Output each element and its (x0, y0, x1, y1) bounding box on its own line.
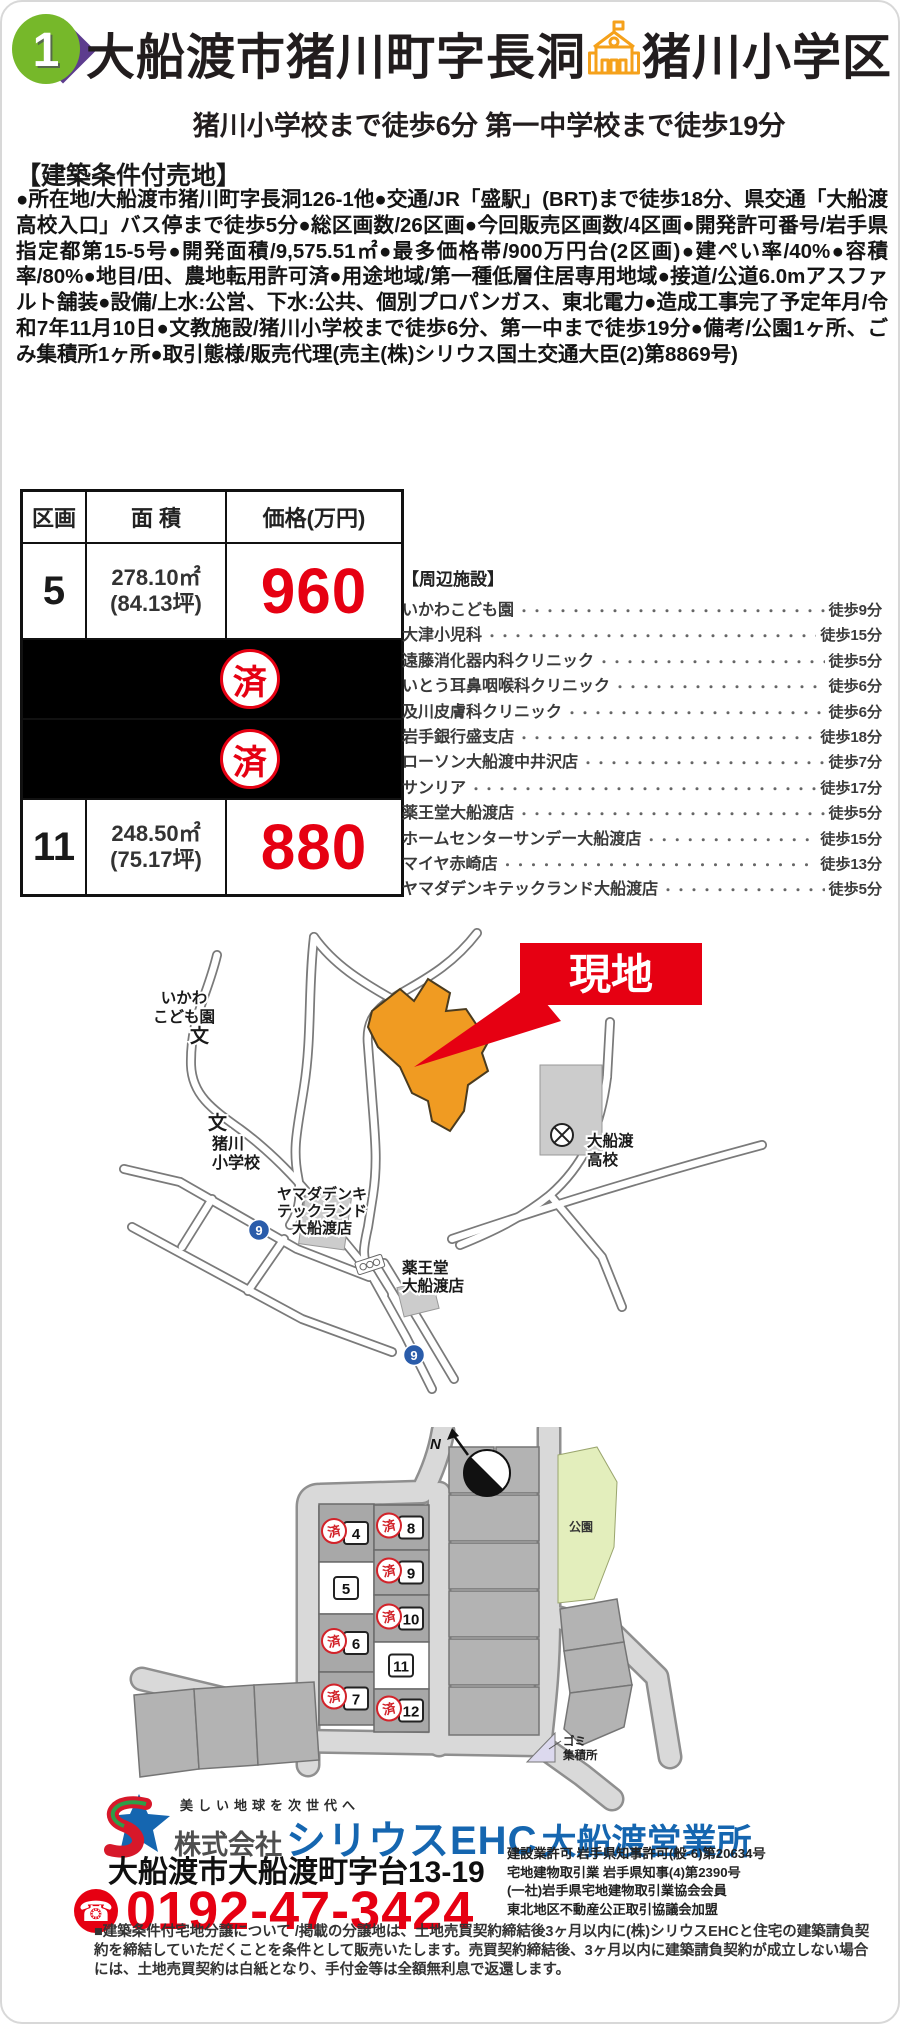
leader-dots (614, 678, 825, 695)
area-tsubo: (75.17坪) (87, 847, 225, 873)
plan-lot-number: 9 (407, 1566, 415, 1583)
map-label-kodomoen: いかわ (161, 989, 208, 1007)
facility-name: 及川皮膚科クリニック (402, 698, 562, 722)
garbage-label: ゴミ (563, 1734, 586, 1748)
facility-name: マイヤ赤崎店 (402, 850, 498, 874)
facility-name: 薬王堂大船渡店 (402, 799, 514, 823)
lot-price: 960 (229, 543, 400, 639)
walk-time-subtitle: 猪川小学校まで徒歩6分 第一中学校まで徒歩19分 (86, 104, 892, 143)
facility-row: いとう耳鼻咽喉科クリニック徒歩6分 (402, 672, 882, 697)
facility-name: 大津小児科 (402, 621, 482, 645)
plan-lot-number: 11 (393, 1659, 409, 1676)
leader-dots (582, 754, 825, 771)
svg-text:9: 9 (255, 1223, 262, 1238)
area-map: 現地 いかわ こども園 文 文 猪川 小学校 ヤマダデンキ テックランド 大船渡… (62, 927, 802, 1442)
facility-name: サンリア (402, 774, 466, 798)
leader-dots (486, 627, 816, 644)
facility-walk-time: 徒歩9分 (829, 599, 882, 620)
map-label-yamada: 大船渡店 (292, 1219, 352, 1237)
site-polygon (368, 979, 492, 1131)
leader-dots (518, 805, 825, 822)
garbage-label: 集積所 (562, 1748, 598, 1762)
facility-walk-time: 徒歩5分 (829, 650, 882, 671)
leader-dots (470, 780, 816, 797)
map-label-highschool: 大船渡 (587, 1131, 634, 1150)
facility-row: ヤマダデンキテックランド大船渡店徒歩5分 (402, 875, 882, 900)
map-label-yamada: テックランド (277, 1203, 367, 1220)
license-line: (一社)岩手県宅地建物取引業協会会員 (507, 1882, 899, 1901)
map-label-elementary: 猪川 (211, 1134, 244, 1153)
table-row-lot11: 11 248.50㎡ (75.17坪) 880 (22, 799, 403, 896)
table-row-sold: 済 (22, 639, 403, 719)
facility-name: いとう耳鼻咽喉科クリニック (402, 672, 610, 696)
license-list: 建設業許可 岩手県知事許可(般-6)第20634号宅地建物取引業 岩手県知事(4… (507, 1845, 899, 1920)
table-header-row: 区画 面 積 価格(万円) (22, 491, 403, 544)
facility-name: ホームセンターサンデー大船渡店 (402, 825, 641, 849)
facility-walk-time: 徒歩6分 (829, 675, 882, 696)
facility-name: 岩手銀行盛支店 (402, 723, 514, 747)
map-label-yakuodo: 薬王堂 (401, 1258, 449, 1277)
route-9-badge: 9 (404, 1345, 425, 1366)
svg-text:9: 9 (410, 1348, 417, 1363)
facility-walk-time: 徒歩18分 (820, 726, 882, 747)
badge-number: 1 (18, 20, 74, 80)
price-table: 区画 面 積 価格(万円) 5 278.10㎡ (84.13坪) 960 済 済… (20, 489, 404, 897)
facilities-panel: 【周辺施設】 いかわこども園徒歩9分大津小児科徒歩15分遠藤消化器内科クリニック… (402, 565, 882, 901)
lot-area: 248.50㎡ (75.17坪) (86, 799, 226, 896)
facility-row: ホームセンターサンデー大船渡店徒歩15分 (402, 825, 882, 850)
plan-lot-number: 10 (403, 1612, 420, 1629)
genchi-flag: 現地 (414, 943, 702, 1067)
map-label-yamada: ヤマダデンキ (277, 1185, 367, 1203)
facility-walk-time: 徒歩7分 (829, 751, 882, 772)
flyer-page: 1 大船渡市猪川町字長洞 猪川小学区 猪川小学校まで徒歩6 (0, 0, 900, 2024)
facility-name: 遠藤消化器内科クリニック (402, 647, 594, 671)
plan-lot-number: 5 (342, 1581, 350, 1598)
leader-dots (662, 881, 825, 898)
facility-name: いかわこども園 (402, 596, 514, 620)
leader-dots (518, 602, 825, 619)
plan-lot-number: 12 (403, 1704, 420, 1721)
sold-stamp: 済 (220, 649, 280, 709)
plan-lot-number: 8 (407, 1521, 415, 1538)
facility-row: 大津小児科徒歩15分 (402, 621, 882, 646)
license-line: 東北地区不動産公正取引協議会加盟 (507, 1901, 899, 1920)
listing-description: ●所在地/大船渡市猪川町字長洞126-1他●交通/JR「盛駅」(BRT)まで徒歩… (16, 187, 888, 368)
license-line: 宅地建物取引業 岩手県知事(4)第2390号 (507, 1864, 899, 1883)
disclaimer-text: ■建築条件付宅地分譲について /掲載の分譲地は、土地売買契約締結後3ヶ月以内に(… (94, 1923, 872, 1980)
facility-walk-time: 徒歩17分 (820, 777, 882, 798)
plan-lot-number: 6 (352, 1636, 360, 1653)
school-symbol: 文 (208, 1111, 228, 1134)
facility-name: ヤマダデンキテックランド大船渡店 (402, 875, 658, 899)
facility-row: マイヤ赤崎店徒歩13分 (402, 850, 882, 875)
leader-dots (598, 653, 825, 670)
number-badge: 1 (12, 14, 90, 92)
route-9-badge: 9 (249, 1220, 270, 1241)
facilities-list: いかわこども園徒歩9分大津小児科徒歩15分遠藤消化器内科クリニック徒歩5分いとう… (402, 596, 882, 901)
leader-dots (645, 831, 816, 848)
area-m2: 248.50㎡ (87, 821, 225, 847)
facility-walk-time: 徒歩5分 (829, 802, 882, 823)
facilities-heading: 【周辺施設】 (402, 565, 882, 590)
map-label-elementary: 小学校 (212, 1153, 261, 1172)
title-school-zone: 猪川小学区 (642, 18, 892, 89)
park-label: 公園 (569, 1520, 593, 1534)
col-header-price: 価格(万円) (226, 491, 403, 544)
plan-lot-number: 7 (352, 1692, 360, 1709)
facility-walk-time: 徒歩13分 (820, 853, 882, 874)
sold-stamp: 済 (220, 729, 280, 789)
lot-number: 5 (22, 543, 87, 639)
area-tsubo: (84.13坪) (87, 591, 225, 617)
facility-row: 遠藤消化器内科クリニック徒歩5分 (402, 647, 882, 672)
school-symbol: 文 (190, 1024, 210, 1047)
title-location: 大船渡市猪川町字長洞 (86, 18, 586, 89)
table-row-sold: 済 (22, 719, 403, 799)
map-label-highschool: 高校 (587, 1150, 619, 1169)
site-plan: 公園 ゴミ 集積所 N 4済56済7済8済9済10済1112済 (112, 1427, 812, 1822)
col-header-lot: 区画 (22, 491, 87, 544)
leader-dots (502, 856, 817, 873)
north-label: N (430, 1436, 442, 1453)
lot-price: 880 (229, 799, 400, 896)
school-building-icon (588, 20, 640, 88)
plan-sale-lots: 4済56済7済8済9済10済1112済 (319, 1504, 429, 1732)
table-row-lot5: 5 278.10㎡ (84.13坪) 960 (22, 543, 403, 639)
facility-row: 及川皮膚科クリニック徒歩6分 (402, 698, 882, 723)
lot-number: 11 (22, 799, 87, 896)
facility-walk-time: 徒歩15分 (820, 828, 882, 849)
map-label-yakuodo: 大船渡店 (402, 1276, 465, 1295)
leader-dots (566, 704, 825, 721)
page-title: 大船渡市猪川町字長洞 猪川小学区 (86, 18, 898, 89)
plan-lot-number: 4 (352, 1526, 361, 1543)
facility-walk-time: 徒歩5分 (829, 878, 882, 899)
map-label-kodomoen: こども園 (153, 1008, 215, 1026)
facility-walk-time: 徒歩6分 (829, 701, 882, 722)
facility-row: ローソン大船渡中井沢店徒歩7分 (402, 748, 882, 773)
facility-name: ローソン大船渡中井沢店 (402, 748, 578, 772)
facility-row: サンリア徒歩17分 (402, 774, 882, 799)
genchi-label: 現地 (569, 951, 653, 998)
area-m2: 278.10㎡ (87, 565, 225, 591)
highschool-symbol (551, 1124, 573, 1146)
license-line: 建設業許可 岩手県知事許可(般-6)第20634号 (507, 1845, 899, 1864)
facility-walk-time: 徒歩15分 (820, 624, 882, 645)
leader-dots (518, 729, 816, 746)
facility-row: いかわこども園徒歩9分 (402, 596, 882, 621)
col-header-area: 面 積 (86, 491, 226, 544)
facility-row: 薬王堂大船渡店徒歩5分 (402, 799, 882, 824)
facility-row: 岩手銀行盛支店徒歩18分 (402, 723, 882, 748)
lot-area: 278.10㎡ (84.13坪) (86, 543, 226, 639)
